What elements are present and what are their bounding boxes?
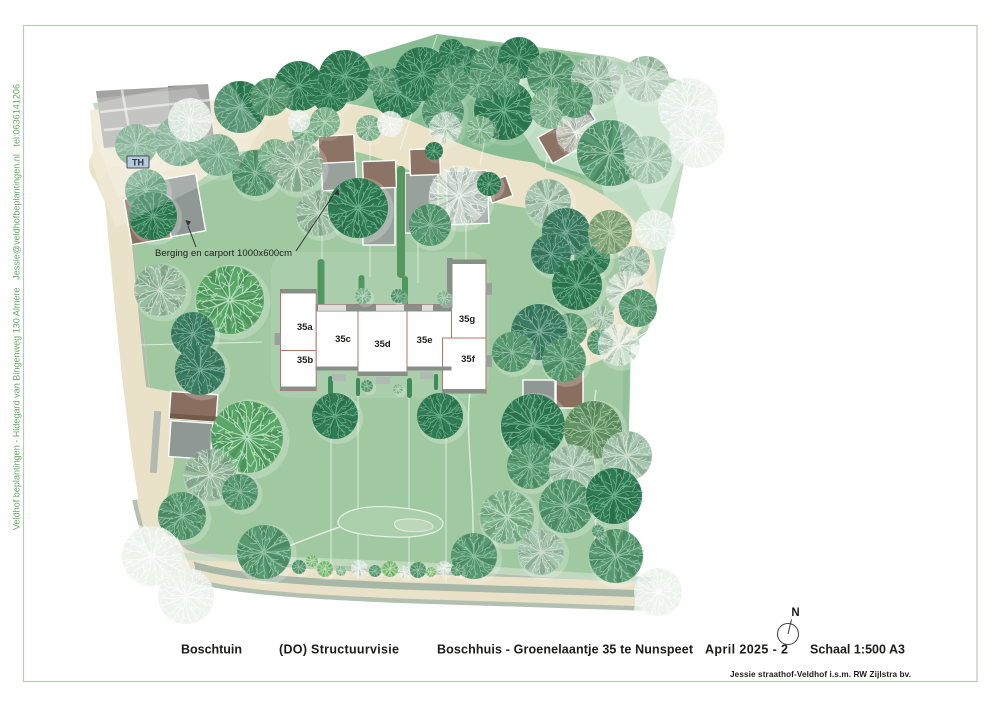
- svg-text:35c: 35c: [335, 334, 351, 345]
- svg-text:April 2025 - 2: April 2025 - 2: [705, 643, 788, 657]
- svg-text:Boschtuin: Boschtuin: [181, 643, 242, 657]
- svg-text:Berging en carport 1000x600cm: Berging en carport 1000x600cm: [155, 248, 292, 259]
- svg-text:35g: 35g: [459, 314, 476, 325]
- svg-text:35f: 35f: [461, 354, 476, 365]
- svg-text:Schaal 1:500 A3: Schaal 1:500 A3: [810, 643, 905, 657]
- svg-text:N: N: [791, 607, 799, 619]
- svg-text:Jessie straathof-Veldhof i.s.m: Jessie straathof-Veldhof i.s.m. RW Zijls…: [730, 670, 911, 679]
- svg-text:35e: 35e: [417, 335, 433, 346]
- svg-text:Veldhof beplantingen - Hidegar: Veldhof beplantingen - Hidegard van Bing…: [12, 84, 22, 530]
- svg-text:35b: 35b: [297, 355, 314, 366]
- svg-text:35a: 35a: [297, 322, 314, 333]
- svg-text:35d: 35d: [374, 339, 391, 350]
- svg-text:TH: TH: [132, 158, 144, 168]
- svg-text:(DO) Structuurvisie: (DO) Structuurvisie: [279, 643, 399, 657]
- svg-text:Boschhuis - Groenelaantje 35 t: Boschhuis - Groenelaantje 35 te Nunspeet: [437, 643, 694, 657]
